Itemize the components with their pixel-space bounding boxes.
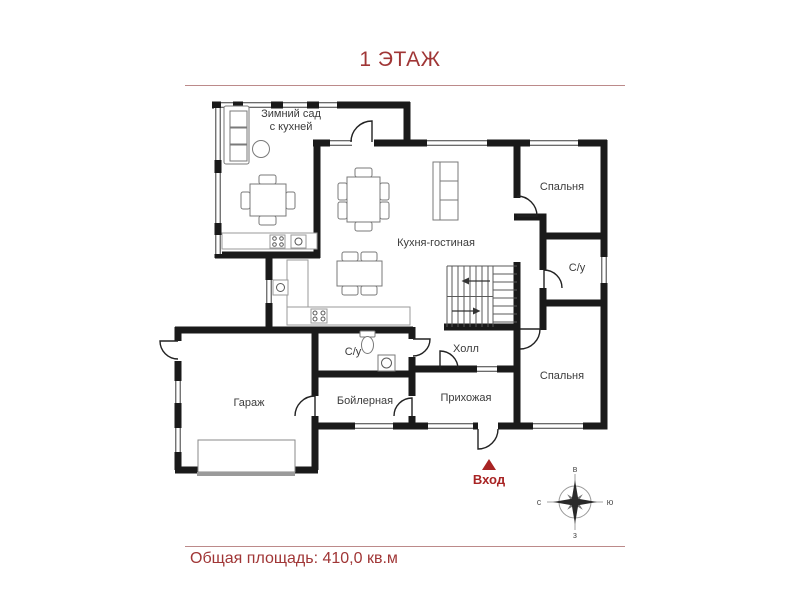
compass-rose: в ю з с xyxy=(537,464,614,540)
entrance-marker: Вход xyxy=(473,459,506,487)
compass-letter-top: в xyxy=(573,464,578,474)
total-area-label: Общая площадь: 410,0 кв.м xyxy=(190,550,398,568)
entrance-arrow-icon xyxy=(482,459,496,470)
room-label-bathroom-2: С/у xyxy=(345,346,362,358)
entrance-label: Вход xyxy=(473,472,506,487)
dining-table xyxy=(347,177,380,222)
room-label-winter-garden-2: с кухней xyxy=(270,121,313,133)
room-label-bathroom-1: С/у xyxy=(569,262,586,274)
compass-letter-left: с xyxy=(537,497,542,507)
door-winter-garden xyxy=(351,121,372,142)
bathroom-2-fixtures xyxy=(360,331,395,371)
room-label-hall: Холл xyxy=(453,343,479,355)
round-table xyxy=(253,141,270,158)
room-label-winter-garden: Зимний сад xyxy=(261,108,321,120)
stove-icon xyxy=(270,235,285,248)
sofa xyxy=(433,162,458,220)
kitchen-counter xyxy=(287,307,410,325)
island-table xyxy=(337,261,382,286)
compass-letter-bottom: з xyxy=(573,530,577,540)
room-label-boiler-room: Бойлерная xyxy=(337,395,393,407)
stairs-arrow-entry-icon xyxy=(473,308,481,315)
toilet-icon xyxy=(360,331,375,354)
room-label-kitchen-living: Кухня-гостиная xyxy=(397,237,475,249)
room-label-bedroom-2: Спальня xyxy=(540,370,584,382)
sink-icon xyxy=(378,355,395,371)
door-garage-side xyxy=(160,341,178,359)
compass-main-star xyxy=(553,480,597,524)
door-bedroom-2 xyxy=(520,329,540,349)
dining-table xyxy=(250,184,286,216)
room-label-bedroom-1: Спальня xyxy=(540,181,584,193)
garage-door xyxy=(197,440,295,474)
door-bathroom-1 xyxy=(544,270,562,288)
floor-plan-svg: Зимний сад с кухней Кухня-гостиная Спаль… xyxy=(0,0,800,600)
sink-icon xyxy=(291,235,306,248)
floor-plan-page: 1 ЭТАЖ xyxy=(0,0,800,600)
stove-icon xyxy=(311,309,327,323)
stairs-arrow-up-icon xyxy=(462,278,470,285)
sink-icon xyxy=(273,280,288,295)
door-bedroom-1 xyxy=(517,196,537,216)
room-label-garage: Гараж xyxy=(233,397,265,409)
door-garage-boiler xyxy=(295,396,315,416)
room-label-entry-hall: Прихожая xyxy=(441,392,492,404)
compass-letter-right: ю xyxy=(607,497,614,507)
stairs xyxy=(447,266,517,327)
door-entrance xyxy=(478,429,498,449)
footer-divider-line xyxy=(185,546,625,547)
door-boiler-room xyxy=(394,398,412,416)
kitchen-counter xyxy=(287,260,308,308)
door-bathroom-2 xyxy=(413,339,430,356)
